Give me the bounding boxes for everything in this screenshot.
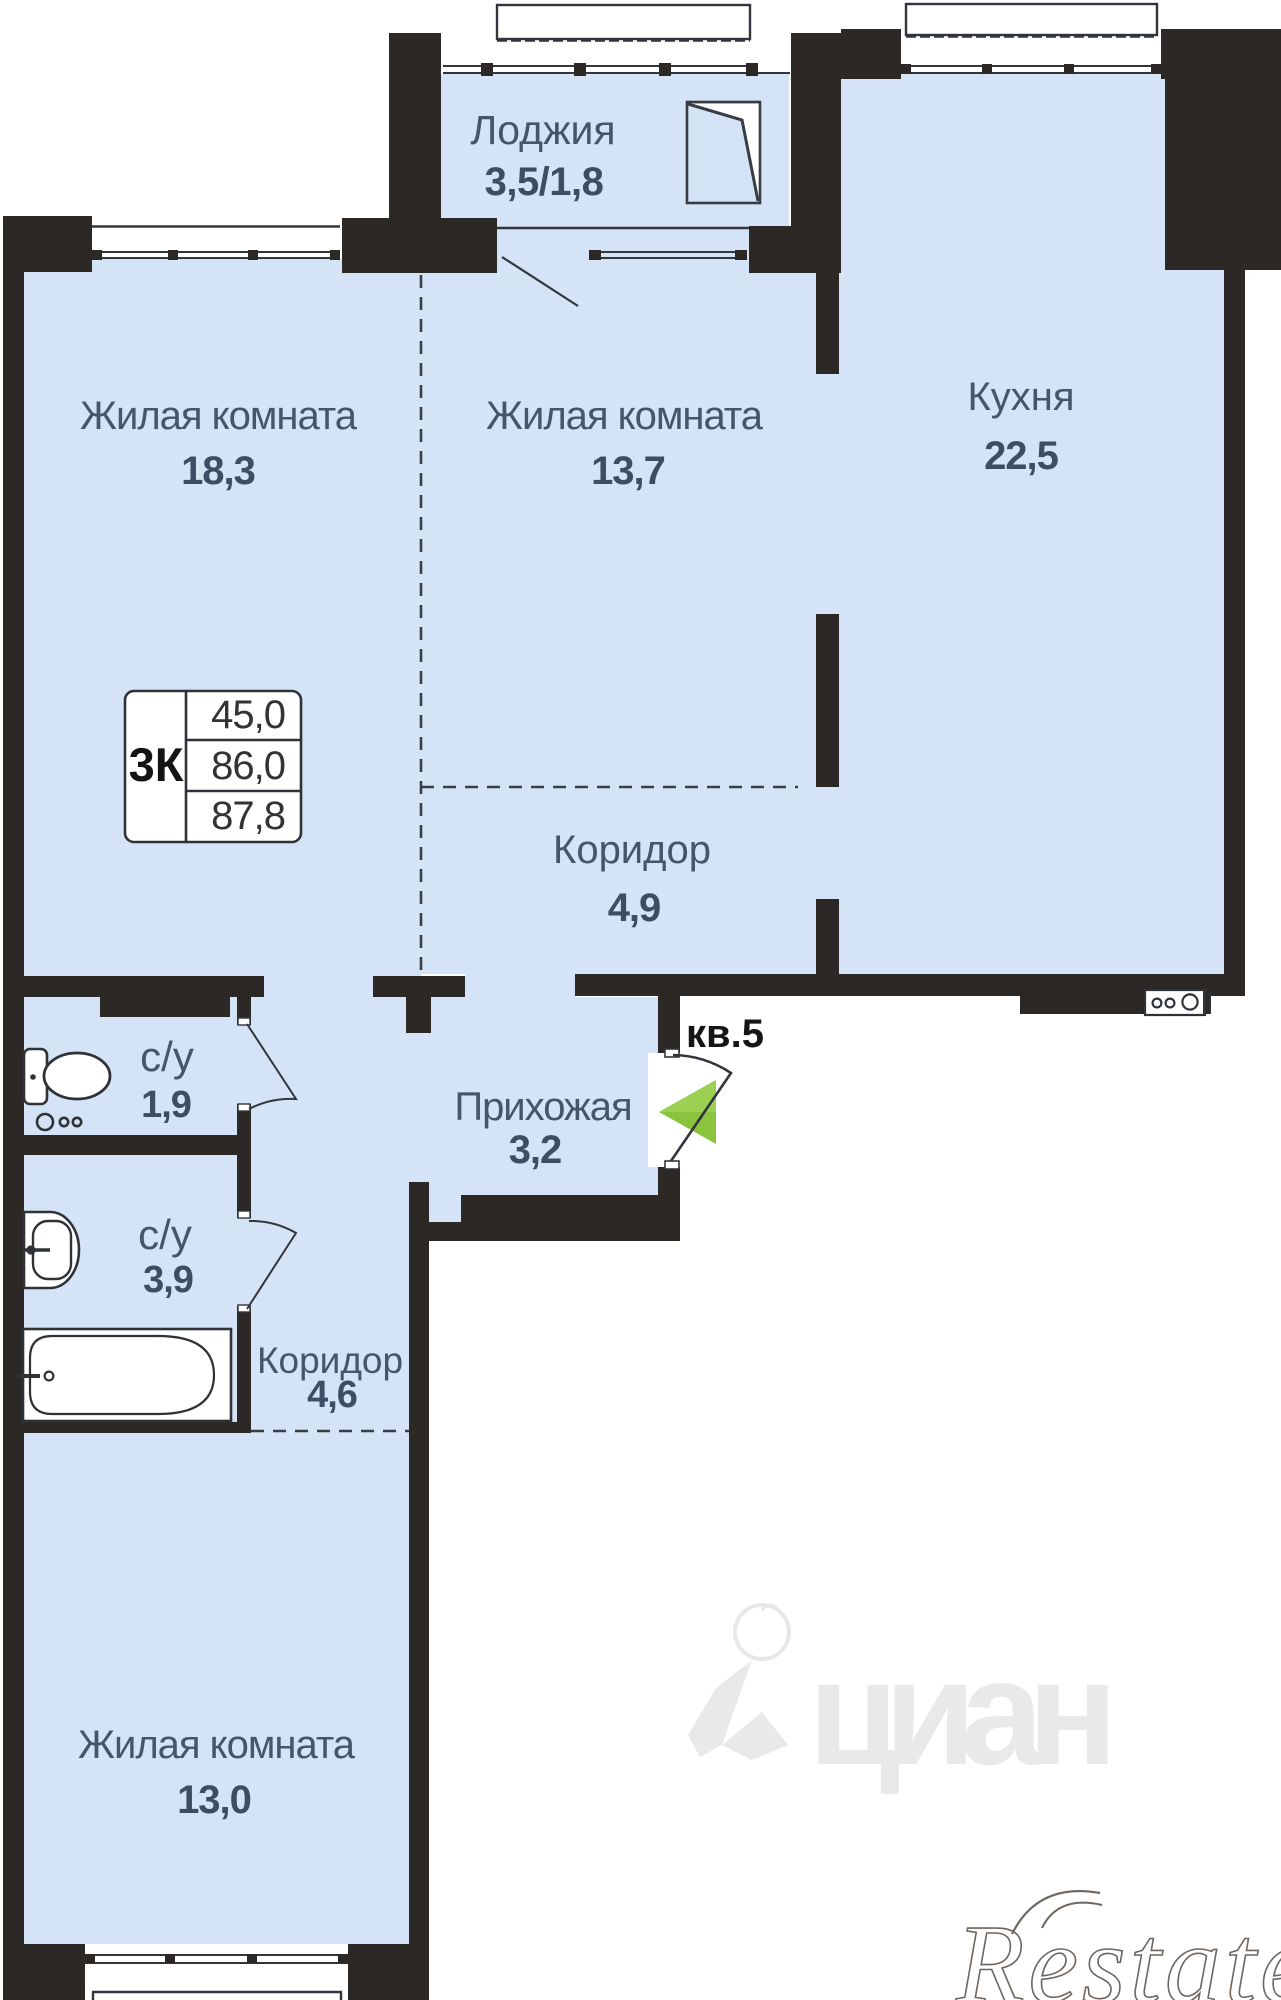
svg-text:13,0: 13,0 [177,1778,251,1822]
svg-text:Жилая комната: Жилая комната [80,394,358,438]
svg-text:4,9: 4,9 [608,886,661,930]
svg-text:Коридор: Коридор [553,828,711,872]
svg-text:3,2: 3,2 [509,1128,562,1172]
svg-text:Кухня: Кухня [967,375,1074,419]
svg-text:4,6: 4,6 [307,1374,357,1416]
svg-text:18,3: 18,3 [181,449,255,493]
svg-text:с/у: с/у [138,1211,192,1258]
svg-text:3К: 3К [129,738,184,791]
svg-text:Restate: Restate [955,1903,1281,2000]
svg-text:45,0: 45,0 [211,693,285,737]
svg-text:Прихожая: Прихожая [454,1085,631,1129]
svg-text:Жилая комната: Жилая комната [486,394,764,438]
svg-text:кв.5: кв.5 [686,1012,764,1056]
svg-text:86,0: 86,0 [211,744,285,788]
svg-text:13,7: 13,7 [591,449,665,493]
svg-text:1,9: 1,9 [141,1084,191,1126]
svg-text:87,8: 87,8 [211,794,285,838]
svg-text:циан: циан [808,1628,1118,1796]
svg-text:Жилая комната: Жилая комната [78,1723,356,1767]
svg-text:с/у: с/у [140,1033,194,1080]
svg-text:Лоджия: Лоджия [470,107,615,153]
svg-text:22,5: 22,5 [984,434,1059,478]
svg-text:3,9: 3,9 [143,1259,193,1301]
svg-text:3,5/1,8: 3,5/1,8 [485,160,604,204]
